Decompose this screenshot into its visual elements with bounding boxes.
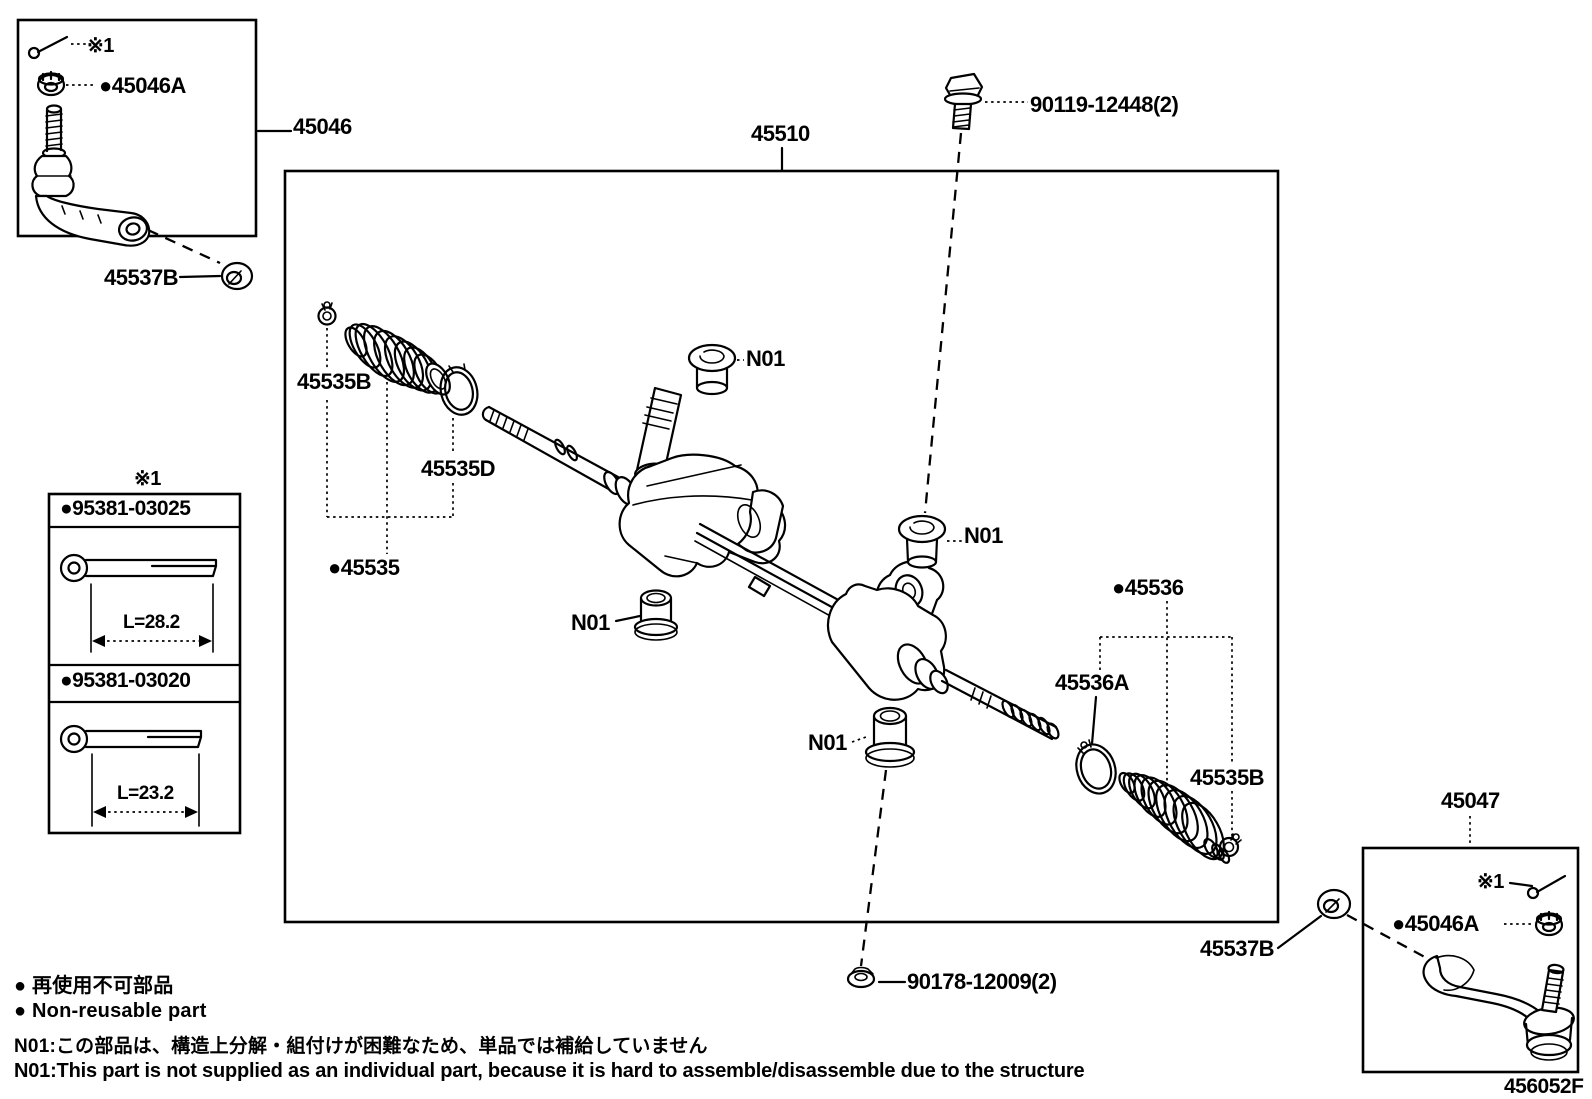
callout-n01-a: N01 [746,348,785,370]
callout-45047: 45047 [1441,790,1500,812]
table-length-1: L=28.2 [123,613,180,632]
lock-nut-top-icon [222,263,252,289]
callout-45535: ●45535 [328,557,399,579]
legend-non-reusable-jp: ● 再使用不可部品 [14,976,173,996]
ref-mark-table: ※1 [134,469,161,489]
note-n01-jp: N01:この部品は、構造上分解・組付けが困難なため、単品では補給していません [14,1037,708,1056]
note-n01-en: N01:This part is not supplied as an indi… [14,1061,1084,1081]
diagram-artwork [0,0,1592,1099]
callout-castle-nut-right: ●45046A [1392,913,1479,935]
ref-mark-top-left: ※1 [87,36,114,56]
callout-45535d: 45535D [421,458,495,480]
callout-n01-b: N01 [964,525,1003,547]
callout-45535b-right: 45535B [1190,767,1264,789]
callout-n01-c: N01 [571,612,610,634]
boot-clamp-large-right-icon [1070,739,1122,798]
dashed-assembly-lines [148,133,1434,966]
castle-nut-icon [38,72,64,95]
grommet-a-drawing [689,345,735,394]
boot-right-callout-connectors [1092,601,1232,836]
callout-90178: 90178-12009(2) [907,971,1057,993]
callout-45535b-left: 45535B [297,371,371,393]
table-part-no-2: ●95381-03020 [60,670,190,691]
tie-rod-end-left-drawing [32,106,149,246]
drawing-code: 456052F [1504,1076,1583,1097]
callout-90119: 90119-12448(2) [1030,94,1178,116]
flange-nut-icon [848,968,874,988]
castle-nut-icon-right [1536,912,1562,935]
table-length-2: L=23.2 [117,784,174,803]
grommet-d-drawing [866,708,914,767]
callout-45536: ●45536 [1112,577,1183,599]
grommet-c-drawing [635,591,677,641]
callout-castle-nut-left: ●45046A [99,75,186,97]
callout-45046: 45046 [293,116,352,138]
main-assembly-box [285,171,1278,922]
tie-rod-end-right-drawing [1424,956,1576,1060]
cotter-pin-icon [29,37,67,58]
legend-non-reusable-en: ● Non-reusable part [14,1001,207,1021]
cotter-pin-2-drawing [61,726,201,826]
boot-clamp-left-icon [319,302,336,325]
callout-45510: 45510 [751,123,810,145]
cotter-pin-1-drawing [61,555,216,652]
callout-45536a: 45536A [1055,672,1129,694]
callout-n01-d: N01 [808,732,847,754]
lock-nut-bottom-icon [1318,890,1350,918]
parts-diagram-page: ※1 ●45046A 45046 45537B 45510 90119-1244… [0,0,1592,1099]
table-part-no-1: ●95381-03025 [60,498,190,519]
flange-bolt-icon [945,74,982,129]
cotter-pin-icon-right [1528,876,1565,898]
grommet-b-drawing [899,516,945,568]
ref-mark-bottom-right: ※1 [1477,872,1504,892]
callout-45537b-bottom: 45537B [1200,938,1274,960]
callout-45537b-top: 45537B [104,267,178,289]
steering-gear-drawing [483,388,1061,740]
